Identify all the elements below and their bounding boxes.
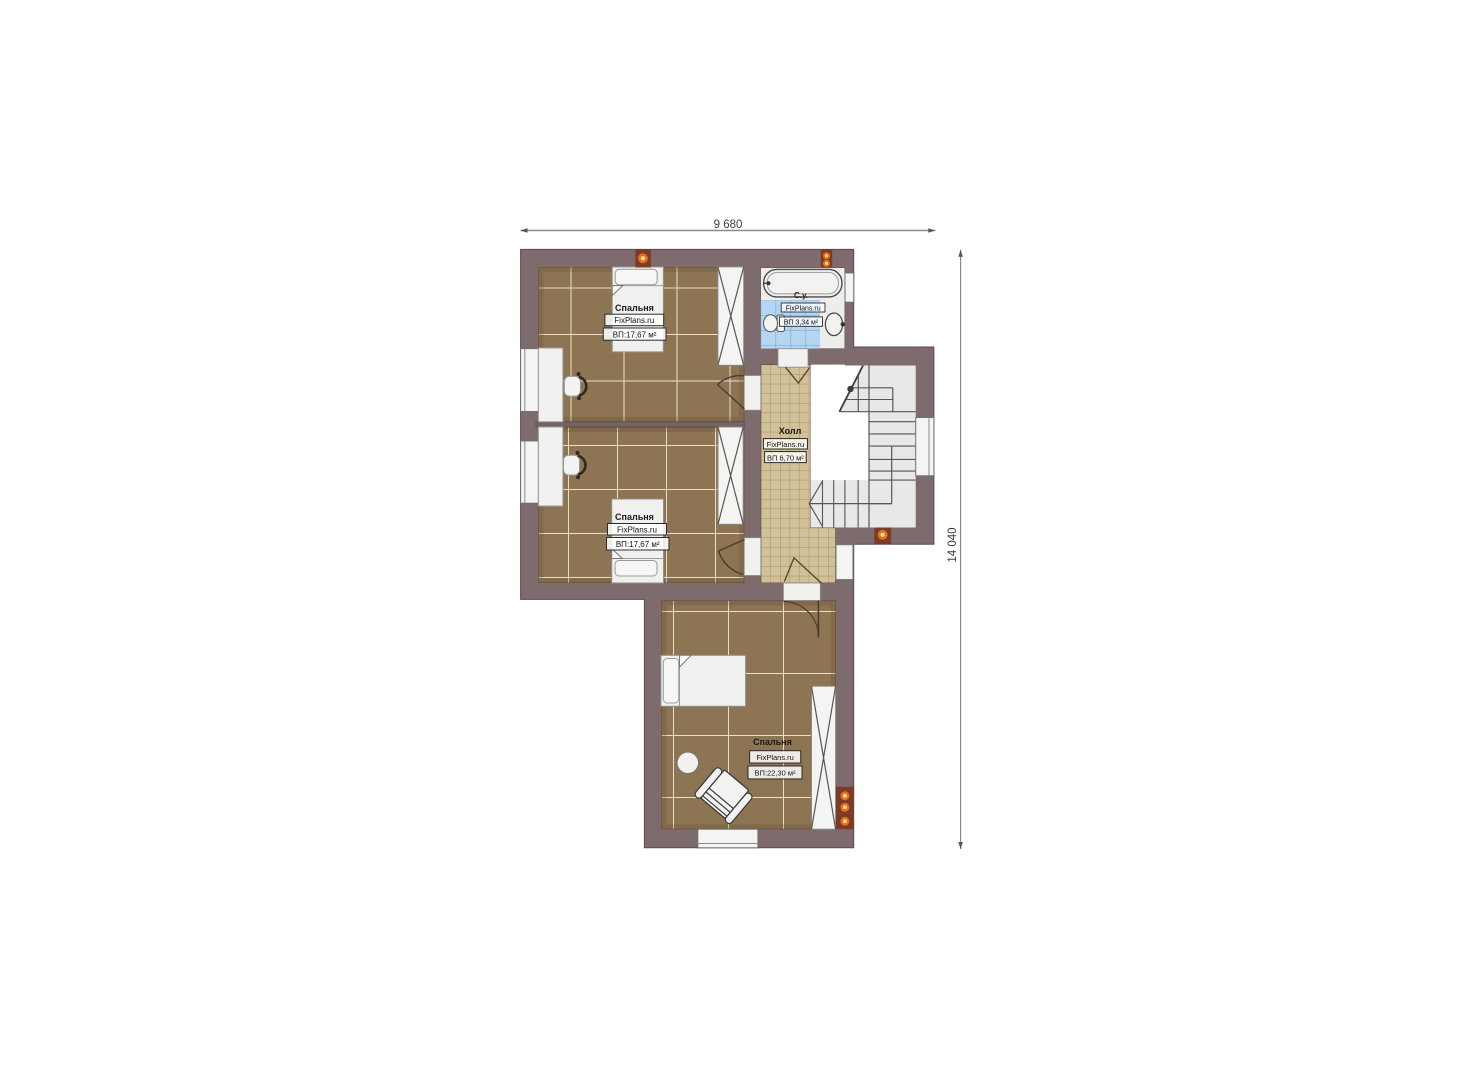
svg-text:ВП:22,30 м²: ВП:22,30 м² — [755, 769, 796, 778]
svg-text:Спальня: Спальня — [615, 303, 654, 313]
svg-text:14 040: 14 040 — [947, 527, 959, 562]
svg-text:9 680: 9 680 — [714, 219, 743, 231]
svg-text:FixPlans.ru: FixPlans.ru — [767, 440, 805, 449]
svg-text:FixPlans.ru: FixPlans.ru — [756, 753, 794, 762]
svg-text:ВП 6,70 м²: ВП 6,70 м² — [767, 453, 804, 462]
svg-text:С.у.: С.у. — [794, 291, 808, 300]
svg-text:FixPlans.ru: FixPlans.ru — [786, 305, 821, 312]
svg-text:ВП:17,67 м²: ВП:17,67 м² — [616, 540, 660, 549]
svg-text:ВП:17,67 м²: ВП:17,67 м² — [613, 330, 657, 339]
svg-text:Спальня: Спальня — [615, 512, 654, 522]
svg-text:FixPlans.ru: FixPlans.ru — [614, 316, 654, 325]
svg-text:FixPlans.ru: FixPlans.ru — [617, 526, 657, 535]
svg-text:Холл: Холл — [779, 426, 802, 436]
svg-text:Спальня: Спальня — [753, 737, 792, 747]
svg-text:ВП 3,34 м²: ВП 3,34 м² — [784, 319, 819, 326]
